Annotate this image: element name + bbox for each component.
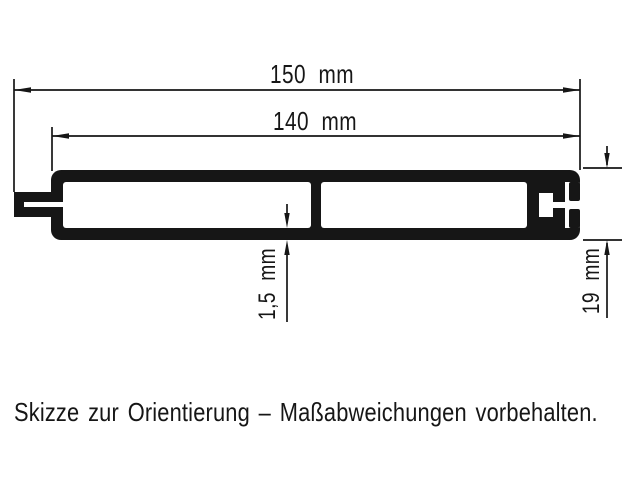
tongue-bottom-bar	[14, 207, 52, 217]
arrow-150-right	[563, 87, 580, 93]
arrow-150-left	[14, 87, 31, 93]
arrow-19-bottom	[604, 240, 609, 255]
dimension-text-140: 140 mm	[273, 108, 357, 134]
tongue-slot	[24, 202, 64, 207]
dimension-text-1-5: 1,5 mm	[256, 248, 280, 320]
hollow-chamber-right	[321, 182, 527, 228]
dimension-label-height: 19 mm	[580, 240, 604, 323]
profile-body	[14, 170, 580, 240]
upper-finger-serif	[553, 193, 565, 202]
arrow-140-right	[563, 133, 580, 139]
tongue-top-bar	[14, 192, 52, 202]
hollow-chamber-left	[63, 182, 311, 228]
lower-finger	[539, 217, 565, 228]
disclaimer-note-text: Skizze zur Orientierung – Maßabweichunge…	[14, 399, 598, 425]
arrow-140-left	[52, 133, 69, 139]
arrow-15-bottom	[284, 240, 289, 255]
dimension-text-150: 150 mm	[270, 61, 354, 87]
bottom-edge-lip	[569, 209, 580, 228]
top-edge-lip	[569, 182, 580, 201]
disclaimer-note: Skizze zur Orientierung – Maßabweichunge…	[14, 399, 640, 425]
arrow-19-top	[604, 153, 609, 168]
lower-finger-serif	[553, 208, 565, 217]
dimension-label-total-width: 150 mm	[260, 61, 365, 87]
dimension-label-wall-thickness: 1,5 mm	[256, 239, 280, 329]
technical-drawing-canvas: 150 mm 140 mm 1,5 mm 19 mm Skizze zur Or…	[0, 0, 640, 480]
upper-finger	[539, 182, 565, 193]
dimension-label-body-width: 140 mm	[263, 108, 368, 134]
dimension-text-19: 19 mm	[580, 248, 604, 314]
